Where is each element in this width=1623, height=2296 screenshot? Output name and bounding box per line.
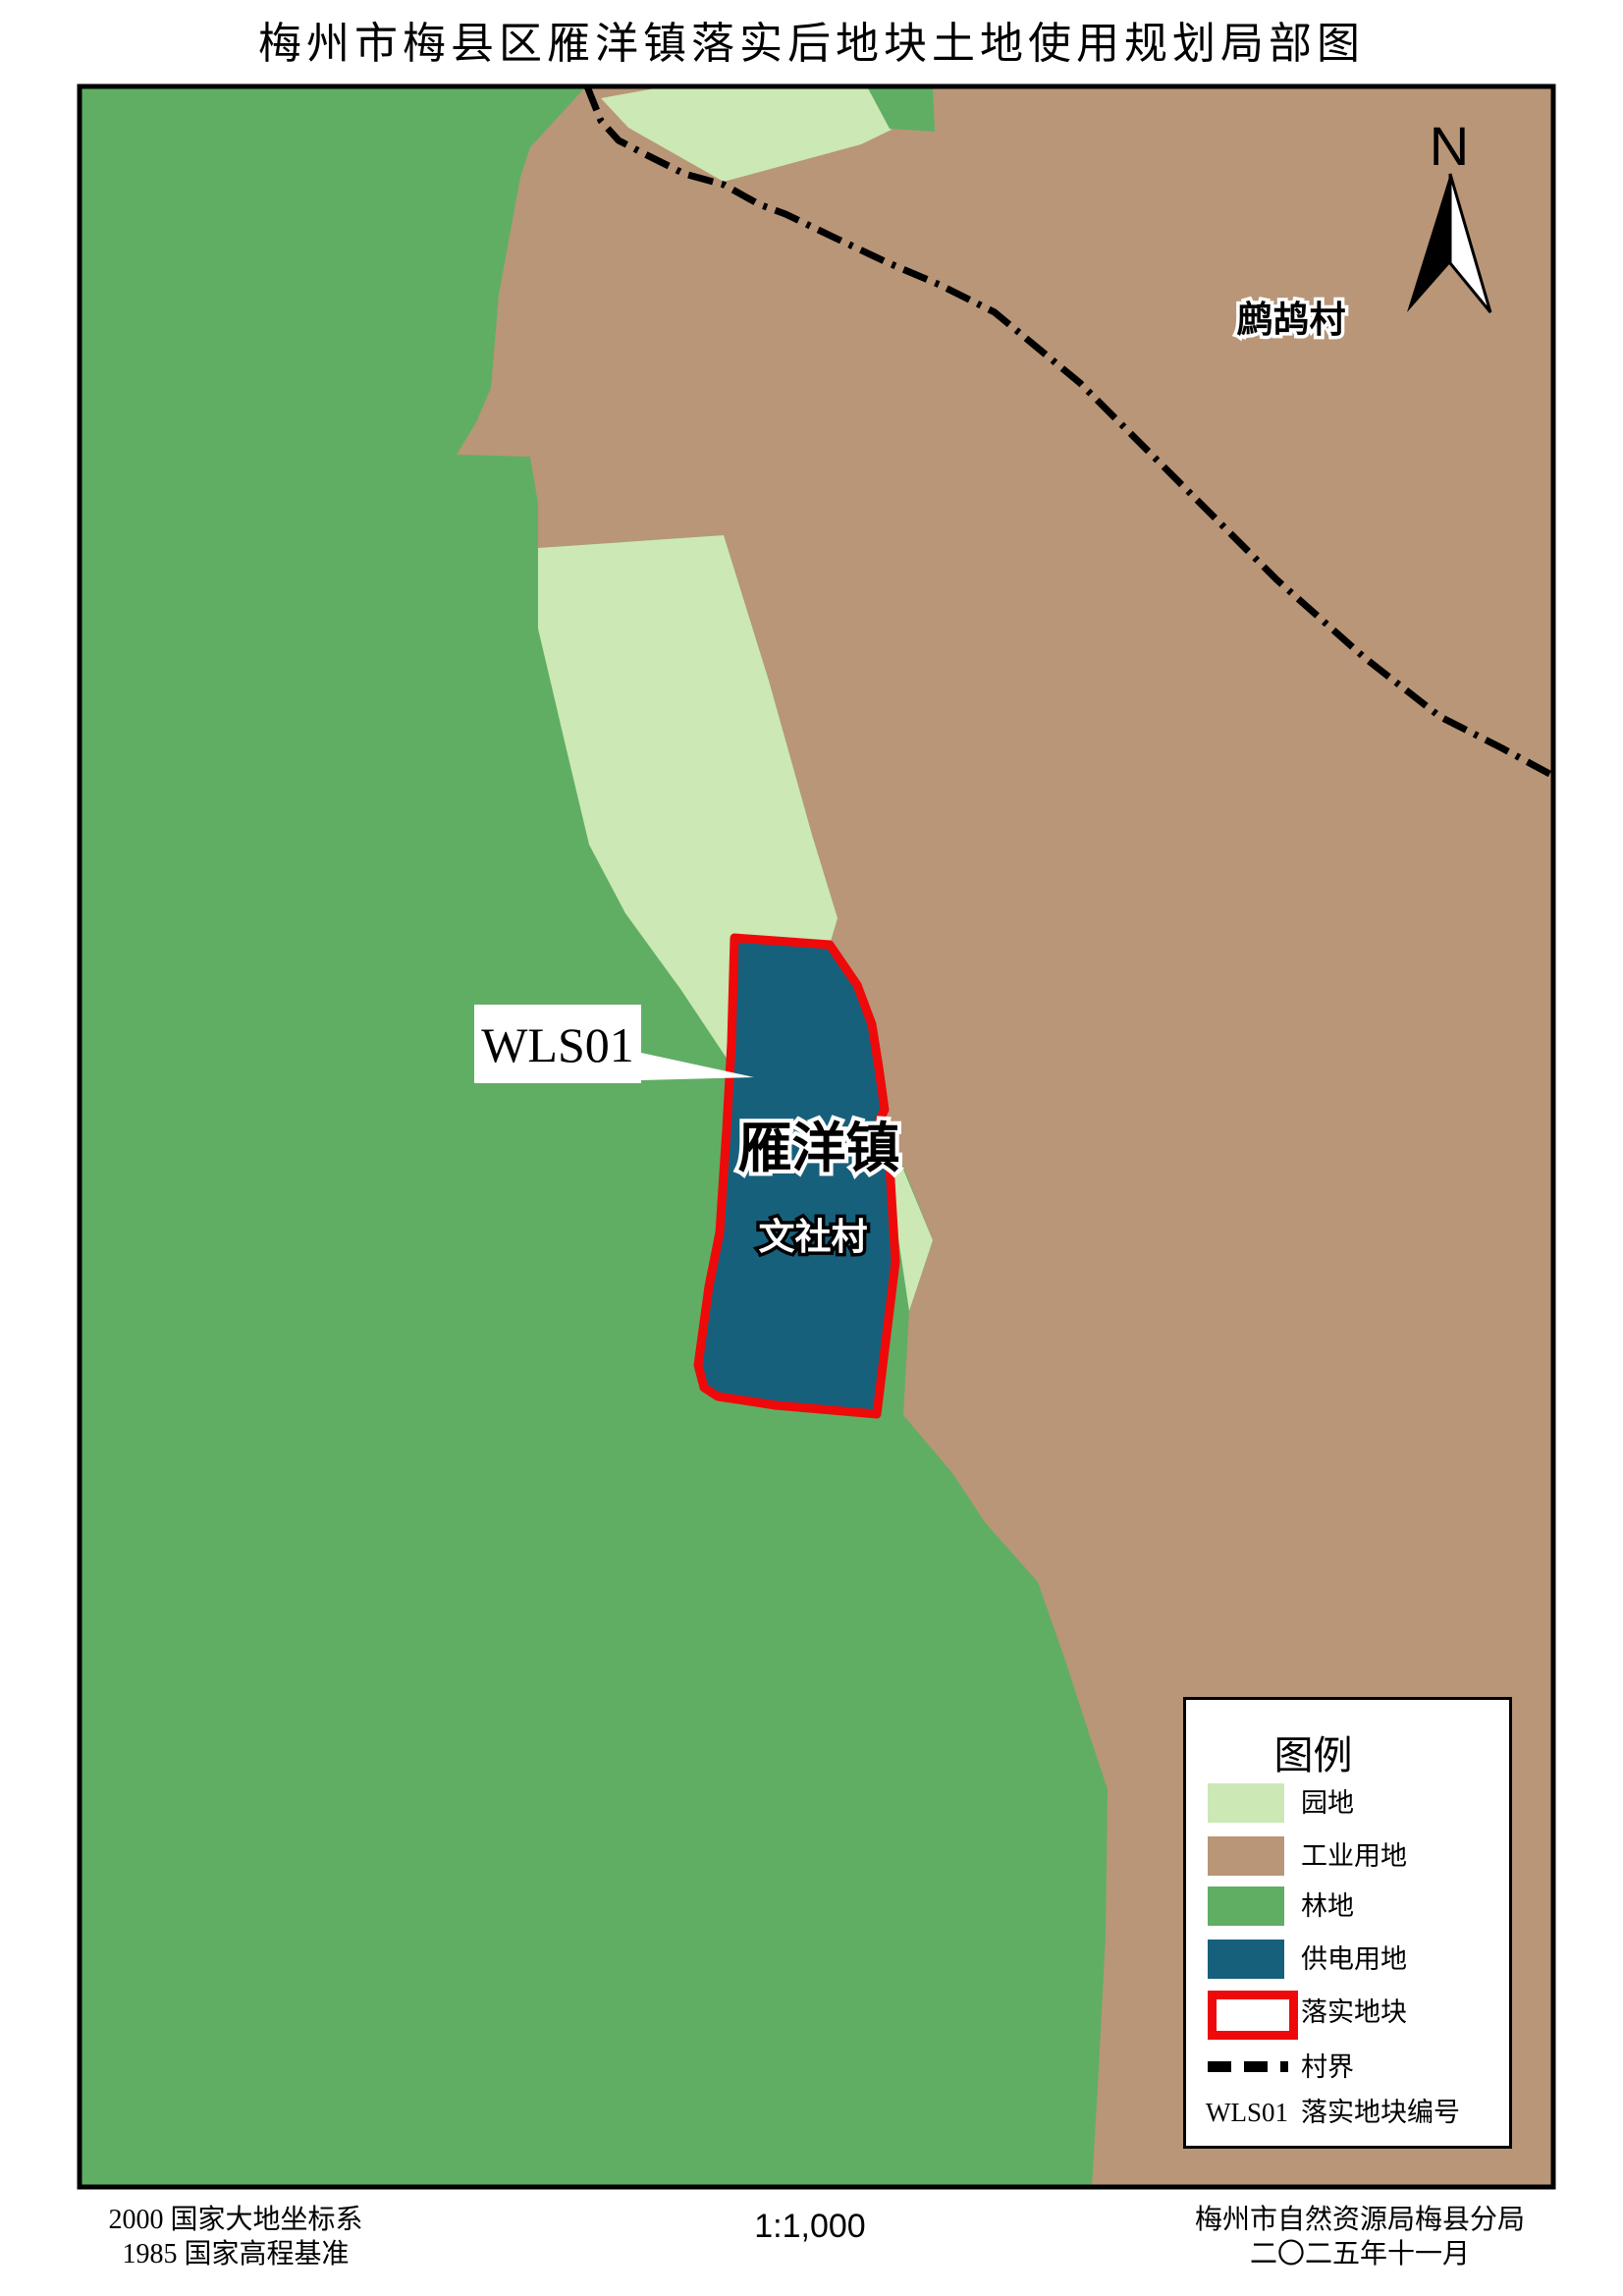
legend-row-plot: 落实地块 [1186,1991,1509,2034]
legend-row-power: 供电用地 [1186,1938,1509,1981]
legend-label: 工业用地 [1301,1834,1407,1878]
legend-row-industrial: 工业用地 [1186,1834,1509,1878]
callout-label: WLS01 [481,1017,634,1072]
forest-swatch [1208,1886,1284,1926]
power-swatch [1208,1940,1284,1979]
industrial-swatch [1208,1836,1284,1876]
legend-row-boundary: 村界 [1186,2046,1509,2089]
legend-title: 图例 [1186,1723,1509,1780]
town-label-on-plot: 雁洋镇 [737,1119,899,1178]
legend-label: 供电用地 [1301,1938,1407,1981]
orchard-swatch [1208,1783,1284,1823]
village-label-on-plot: 文社村 [759,1217,868,1258]
agency-name: 梅州市自然资源局梅县分局 [1144,2203,1576,2237]
north-arrow-letter: N [1430,115,1469,177]
legend-row-forest: 林地 [1186,1885,1509,1928]
legend-row-orchard: 园地 [1186,1781,1509,1825]
village-boundary-swatch [1208,2061,1288,2072]
legend-label: 落实地块 [1301,1991,1407,2034]
datum-note: 2000 国家大地坐标系 1985 国家高程基准 [83,2203,388,2271]
plot-outline-swatch [1208,1991,1298,2040]
legend-row-plot-code: WLS01 落实地块编号 [1186,2091,1509,2134]
legend-label: 园地 [1301,1781,1354,1825]
map-date: 二〇二五年十一月 [1144,2237,1576,2271]
agency-note: 梅州市自然资源局梅县分局 二〇二五年十一月 [1144,2203,1576,2271]
datum-line2: 1985 国家高程基准 [83,2237,388,2271]
legend-box: 图例 园地 工业用地 林地 供电用地 落实地块 村界 WLS01 落实地块编号 [1183,1697,1512,2149]
village-label-top-right: 鹧鸪村 [1237,300,1346,341]
legend-label: 林地 [1301,1885,1354,1928]
datum-line1: 2000 国家大地坐标系 [83,2203,388,2237]
legend-label: 村界 [1301,2046,1354,2089]
planning-map-page: 梅州市梅县区雁洋镇落实后地块土地使用规划局部图 [0,0,1623,2296]
legend-label: 落实地块编号 [1301,2091,1460,2134]
map-scale: 1:1,000 [697,2210,923,2244]
plot-code-sample: WLS01 [1206,2091,1288,2134]
